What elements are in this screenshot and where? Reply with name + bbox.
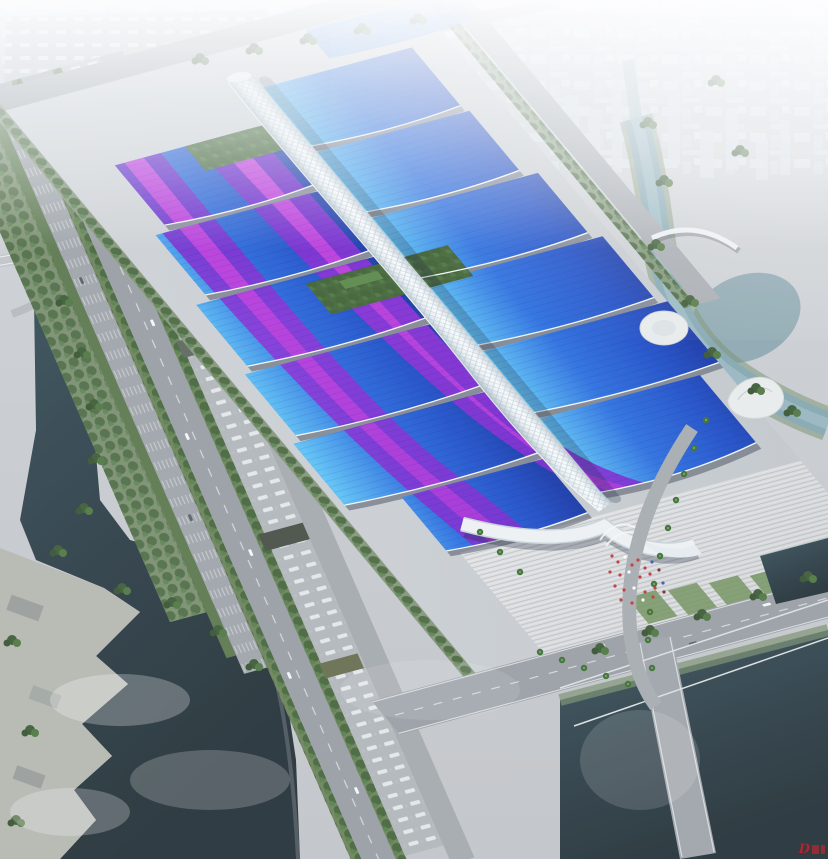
watermark-glyph bbox=[812, 845, 819, 854]
haze-veil bbox=[0, 0, 828, 859]
watermark-text: D bbox=[799, 843, 810, 856]
watermark-glyph bbox=[821, 845, 825, 854]
aerial-render: D bbox=[0, 0, 828, 859]
rendered-scene bbox=[0, 0, 828, 859]
watermark-logo: D bbox=[799, 843, 825, 856]
